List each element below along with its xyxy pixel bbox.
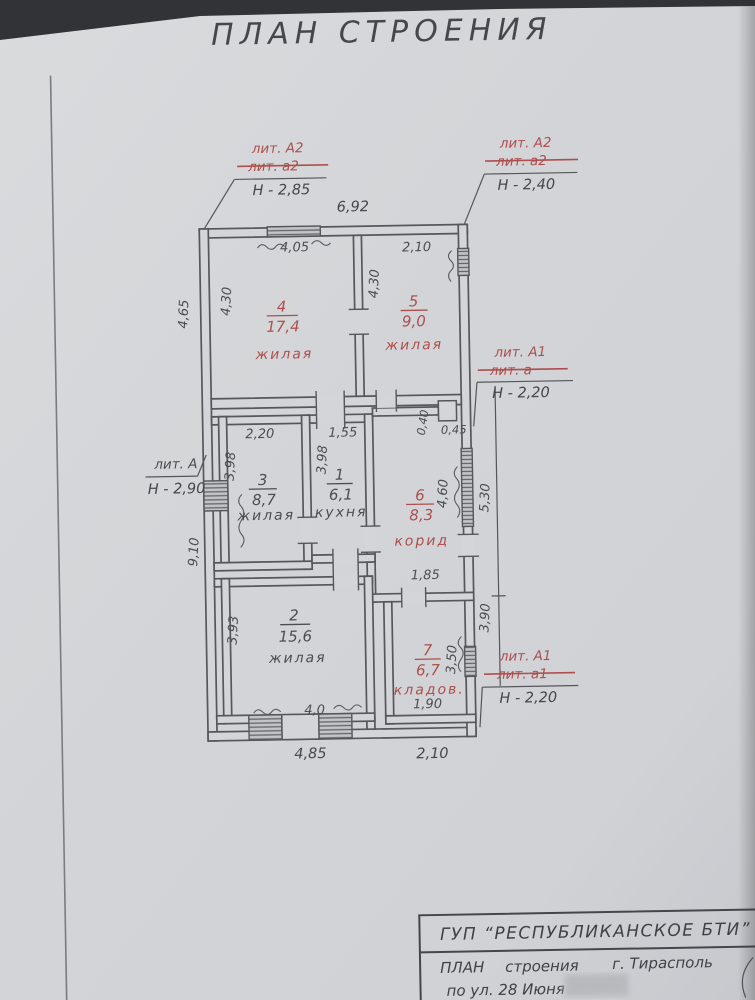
height-label: Н - 2,20 (492, 385, 550, 402)
litera-new: лит. А1 (493, 344, 546, 361)
litera: лит. А (153, 456, 197, 473)
dim-room2-bottom: 4,0 (304, 703, 325, 718)
wall-room7-bottom (386, 714, 476, 724)
room-area: 8,3 (409, 506, 433, 524)
wall-room2-right (364, 576, 375, 729)
room-number: 2 (289, 606, 299, 624)
height-label: Н - 2,20 (499, 690, 557, 707)
dim-right-upper: 5,30 (477, 483, 493, 513)
dim-left-lower: 9,10 (186, 537, 202, 567)
room-area: 17,4 (266, 317, 300, 336)
room-type: жилая (384, 337, 443, 354)
scanned-floor-plan-photo: ПЛАН СТРОЕНИЯ (0, 0, 755, 1000)
window-room7-right (465, 646, 477, 676)
dim-notch-h: 0,45 (441, 422, 467, 436)
height-label: Н - 2,85 (252, 182, 310, 199)
room-type: жилая (254, 346, 313, 363)
doc-type: ПЛАН (440, 958, 484, 977)
doc-object: строения (505, 957, 579, 976)
dim-right-lower: 3,90 (477, 603, 493, 633)
redacted-area (564, 974, 628, 997)
page-title: ПЛАН СТРОЕНИЯ (211, 12, 553, 53)
dim-bottom-left: 4,85 (294, 746, 327, 763)
wall-room7-left (384, 602, 394, 724)
dim-corridor-bottom: 1,85 (411, 568, 440, 584)
room-number: 4 (277, 298, 287, 316)
room-area: 15,6 (279, 627, 313, 646)
room-area: 8,7 (252, 491, 277, 509)
photo-edge-right (738, 0, 755, 1000)
room-type: жилая (268, 650, 327, 667)
wall-room3-bottom (214, 561, 312, 571)
room-number: 6 (415, 486, 425, 504)
height-label: Н - 2,90 (148, 481, 206, 498)
city: г. Тирасполь (612, 953, 713, 973)
dim-room7-bottom: 1,90 (413, 697, 442, 713)
dim-kitchen-left: 3,98 (315, 445, 331, 475)
dim-room2-left: 3,93 (226, 615, 242, 645)
room-area: 9,0 (402, 312, 426, 330)
room-number: 1 (335, 466, 345, 484)
room-number: 3 (258, 471, 268, 489)
window-room3-left (204, 481, 229, 511)
room-area: 6,1 (329, 485, 353, 503)
dim-room3-left: 3,98 (223, 451, 239, 481)
street-address: по ул. 28 Июня (446, 980, 565, 1000)
dim-corridor-right: 4,60 (435, 479, 451, 509)
wall-room3-kitchen (302, 415, 313, 569)
window-room2-bottom-1 (249, 715, 282, 741)
dim-room5-left: 4,30 (366, 269, 382, 299)
dim-left-upper: 4,65 (176, 299, 192, 329)
dim-room4-left: 4,30 (219, 286, 235, 316)
room-type: корид (394, 533, 449, 550)
dim-top-width: 6,92 (337, 199, 370, 216)
window-corridor-right (461, 448, 473, 526)
litera-new: лит. А2 (251, 140, 304, 157)
window-room5-right (458, 248, 469, 275)
dim-kitchen-top: 1,55 (328, 425, 357, 441)
room-number: 5 (409, 292, 419, 310)
room-type: жилая (236, 507, 295, 524)
paper-background (0, 0, 755, 1000)
dim-room3-top: 2,20 (245, 427, 274, 443)
room-number: 7 (423, 641, 433, 659)
wall-notch (438, 401, 456, 421)
wall-room2-left (221, 579, 232, 724)
dim-room4-top: 4,05 (280, 240, 309, 256)
room-area: 6,7 (416, 661, 441, 679)
dim-bottom-right: 2,10 (416, 746, 449, 763)
height-label: Н - 2,40 (497, 177, 555, 194)
litera-new: лит. А1 (499, 648, 552, 665)
window-room4-top (267, 226, 320, 237)
dim-room5-top: 2,10 (402, 240, 431, 256)
litera-new: лит. А2 (499, 135, 552, 152)
room-type: кухня (315, 504, 368, 521)
dim-room7-right: 3,50 (444, 645, 460, 675)
